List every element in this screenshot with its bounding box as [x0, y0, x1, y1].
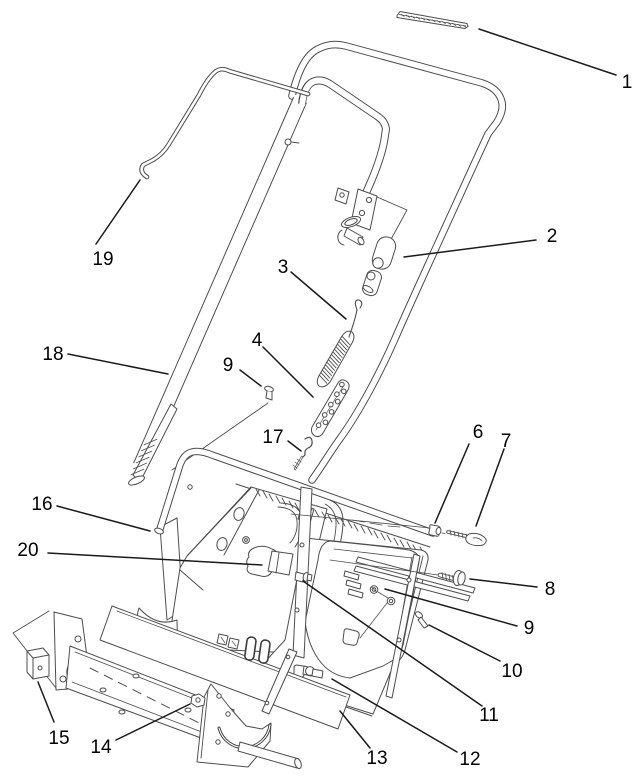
svg-text:20: 20 — [17, 540, 38, 561]
svg-text:17: 17 — [262, 427, 283, 448]
svg-text:10: 10 — [501, 661, 522, 682]
svg-text:19: 19 — [92, 249, 113, 270]
svg-text:13: 13 — [366, 748, 387, 769]
svg-text:16: 16 — [31, 494, 52, 515]
svg-text:8: 8 — [545, 579, 556, 600]
svg-text:9: 9 — [524, 618, 535, 639]
svg-text:15: 15 — [48, 728, 69, 749]
svg-text:12: 12 — [459, 749, 480, 770]
svg-text:3: 3 — [278, 257, 289, 278]
svg-text:6: 6 — [473, 422, 484, 443]
svg-text:2: 2 — [547, 226, 558, 247]
svg-text:18: 18 — [42, 344, 63, 365]
svg-text:1: 1 — [622, 72, 633, 93]
svg-text:11: 11 — [479, 705, 499, 726]
svg-text:9: 9 — [223, 355, 234, 376]
svg-text:14: 14 — [90, 737, 112, 758]
svg-text:7: 7 — [501, 431, 512, 452]
svg-text:4: 4 — [252, 330, 263, 351]
